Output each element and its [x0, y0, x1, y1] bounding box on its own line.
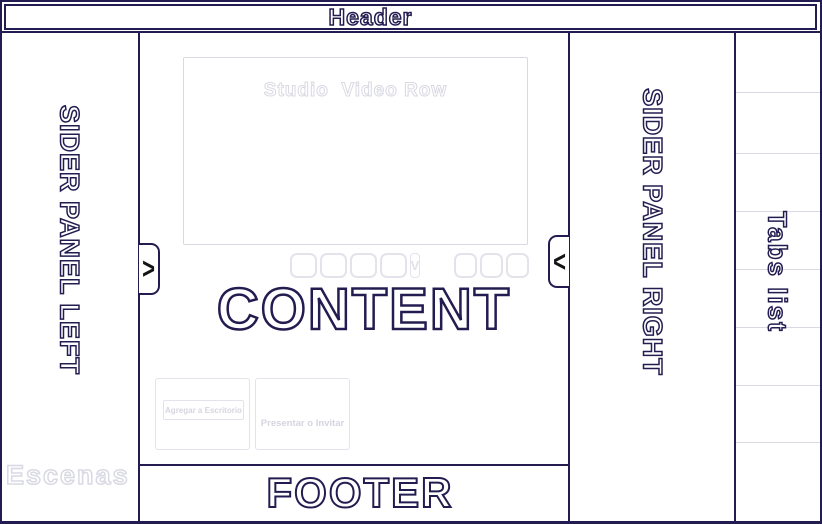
content-area: Studio Video Row V CONTENT Agregar a Esc… [140, 33, 568, 464]
collapse-right-panel-handle[interactable]: < [548, 235, 569, 288]
studio-video-row: Studio Video Row [183, 57, 528, 245]
chevron-down-icon: V [411, 258, 420, 273]
present-or-invite-card[interactable]: Presentar o Invitar [255, 378, 350, 450]
content-title: CONTENT [140, 281, 568, 339]
thumbnail-slot[interactable] [290, 253, 317, 278]
add-to-desktop-button[interactable]: Agregar a Escritorio [163, 400, 244, 420]
tabs-list-cell[interactable] [736, 443, 822, 524]
present-or-invite-label: Presentar o Invitar [261, 418, 344, 429]
thumbnail-slot[interactable] [454, 253, 477, 278]
thumbnail-slot[interactable] [350, 253, 377, 278]
thumbnail-row: V [290, 253, 529, 278]
thumbnail-slot[interactable] [506, 253, 529, 278]
thumbnail-slot[interactable] [320, 253, 347, 278]
add-to-desktop-card[interactable]: Agregar a Escritorio [155, 378, 250, 450]
expand-left-panel-handle[interactable]: > [139, 243, 160, 295]
sider-panel-left-title: SIDER PANEL LEFT [54, 105, 85, 375]
thumbnail-slot[interactable] [480, 253, 503, 278]
scenes-label: Escenas [6, 460, 130, 491]
tabs-list: Tabs list [736, 33, 822, 524]
tabs-list-cell[interactable] [736, 386, 822, 443]
tabs-list-cell[interactable] [736, 154, 822, 212]
tabs-list-title: Tabs list [762, 211, 793, 333]
footer: FOOTER [140, 464, 568, 524]
thumbnail-dropdown[interactable]: V [410, 253, 420, 278]
sider-panel-left: SIDER PANEL LEFT Escenas [0, 33, 140, 524]
sider-panel-right: SIDER PANEL RIGHT [568, 33, 736, 524]
footer-title: FOOTER [267, 472, 454, 514]
chevron-left-icon: < [553, 247, 566, 277]
header: Header [4, 4, 817, 30]
studio-video-row-label: Studio Video Row [264, 80, 447, 244]
thumbnail-slot[interactable] [380, 253, 407, 278]
sider-panel-right-title: SIDER PANEL RIGHT [637, 88, 668, 376]
tabs-list-cell[interactable] [736, 328, 822, 386]
app-canvas: Header SIDER PANEL LEFT Escenas Studio V… [0, 0, 822, 524]
tabs-list-cell[interactable] [736, 93, 822, 154]
tabs-list-cell[interactable] [736, 33, 822, 93]
header-title: Header [329, 6, 413, 29]
chevron-right-icon: > [142, 254, 155, 284]
